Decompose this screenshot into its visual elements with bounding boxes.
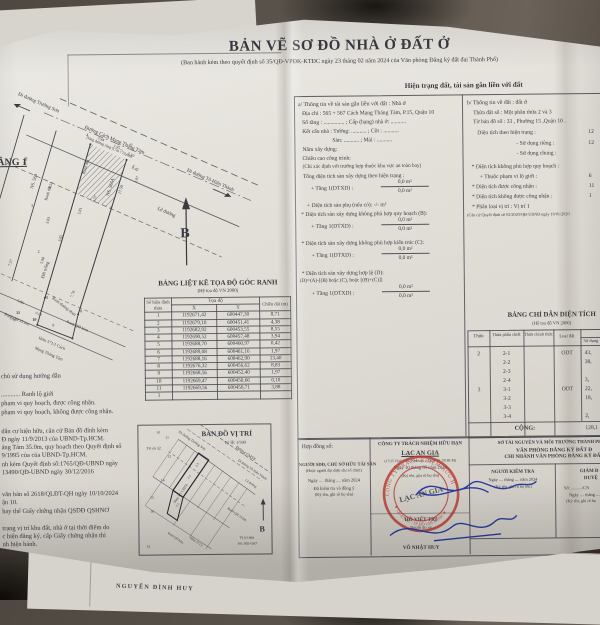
map-lot-number: 14: [161, 479, 165, 483]
area-cell: ODT: [554, 350, 581, 357]
note-line: ận 10.: [2, 499, 18, 507]
area-cell: 3-3: [490, 405, 524, 412]
section-a-line: + Tầng 1(DTXD) :: [312, 291, 354, 298]
signature-2-underline: [434, 534, 500, 541]
dim-label: 8.55: [47, 181, 54, 189]
area-fraction: 0,0 m² 0,0 m²: [381, 217, 429, 233]
area-cell: ODT: [554, 386, 581, 393]
area-cell: 3-2: [490, 396, 524, 403]
location-map-frame: BẢN ĐỒ VỊ TRÍ Tỷ lệ: 1/500: [137, 423, 272, 555]
coord-col-vertex: Số hiệu đỉnh thửa: [144, 298, 171, 313]
area-total-value: 128,1: [585, 425, 598, 432]
note-line: nh kèm Quyết định số:1765/QĐ-UBND ngày: [2, 460, 118, 469]
area-cell: 3-4: [490, 414, 524, 421]
area-cell: 43,: [585, 350, 592, 356]
company-type: CÔNG TY TRÁCH NHIỆM HỮU HẠN: [372, 441, 469, 448]
section-b-label: Tờ bản đồ số : 33 , Phường 15 ,Quận 10 .: [473, 118, 566, 125]
section-b-label: * Diện tích được công nhận :: [472, 184, 537, 191]
photo-scene: NGUYỄN ĐÌNH HUY BẢN VẼ SƠ ĐỒ NHÀ Ở ĐẤT Ở…: [0, 0, 600, 600]
area-cell: 2: [468, 351, 490, 358]
vertex-number: 2: [37, 249, 39, 254]
coord-col-len: Chiều dài (m): [259, 297, 290, 312]
note-line: nh hiện hành.: [3, 541, 38, 549]
map-lot-number: 12: [168, 454, 172, 458]
area-cell: 2-1: [490, 351, 524, 358]
section-a-line: Kết cấu nhà : Tường: ........... ; Cột :…: [302, 128, 399, 135]
area-col-sub: Thửa phân chiết: [489, 332, 523, 338]
fraction-bottom: 0,0 m²: [382, 292, 430, 300]
director-title-1: GIÁM Đ: [580, 469, 599, 475]
area-cell: 3: [468, 387, 490, 394]
map-lot-number: 16: [150, 510, 154, 514]
section-a-line: (D)=(A)-[(B) hoặc (C), hoặc [(B)+(C)]]: [300, 278, 383, 285]
dim-label: 3.83: [44, 216, 51, 224]
signature-2: [390, 516, 516, 535]
section-a-line: Năm xây dựng:: [302, 147, 337, 154]
section-a-address: Địa chỉ : 565 + 567 Cách Mạng Tháng Tám,…: [302, 110, 434, 118]
area-col-type: Loại đất: [553, 333, 580, 339]
contract-number-label: Hợp đồng số:: [302, 444, 333, 451]
location-map: BẢN ĐỒ VỊ TRÍ Tỷ lệ: 1/500: [138, 424, 271, 553]
note-line: 9/1995 của của UBND-Tp.HCM.: [2, 451, 87, 459]
map-lot-number: 15: [150, 496, 154, 500]
map-lot-number: 10: [156, 431, 160, 435]
signatures: [382, 468, 543, 556]
note-line: áng Tám 35.0m, quy hoạch theo Quyết định…: [2, 443, 122, 452]
area-cell: 22,: [585, 386, 592, 392]
area-cell: 3-1: [490, 387, 524, 394]
north-label: B: [180, 226, 190, 241]
area-col-use: Sử dụng: [583, 338, 598, 343]
neighbor-boundary-2: [0, 115, 26, 261]
section-b-label: Thửa đất số : Một phần thửa 2 và 3: [473, 109, 552, 116]
vertex-number: 5: [120, 148, 122, 153]
note-line: c hiện đăng ký, cấp Giấy chứng nhận thì: [2, 532, 105, 540]
cell: [172, 391, 217, 399]
setback-hatch-area: [75, 144, 127, 210]
section-b-label: * Diện tích không được công nhận :: [472, 193, 552, 200]
area-total-label: CỘNG:: [468, 424, 581, 432]
map-lot-number: 32: [147, 545, 151, 549]
area-fraction: 0,0 m² 0,0 m²: [381, 179, 429, 195]
section-b-value: 12: [588, 129, 594, 135]
area-col-official: Thửa chính thức: [523, 331, 553, 337]
house-left-label: NS. 569: [29, 173, 38, 190]
section-b-label: + Thuộc phạm vi lộ giới :: [480, 174, 537, 181]
owner-date: Ngày .... tháng .... năm 2024: [299, 477, 369, 483]
section-b-value: 11: [589, 183, 594, 189]
director-number: Số: ........../CN: [564, 485, 589, 490]
fraction-bottom: 0,0 m²: [381, 187, 429, 195]
dept-line-3: CHI NHÁNH VĂN PHÒNG ĐĂNG KÝ ĐẤT: [471, 454, 600, 462]
vertex-number: 3: [31, 203, 33, 208]
section-b-heading: b/ Thông tin về đất : đất ở: [467, 100, 527, 107]
vertex-number: 1: [46, 295, 48, 300]
map-road-dir-right: Đi đường Tô Hiến Thành: [237, 458, 268, 481]
note-line: phạm vi quy hoạch, không được công nhận.: [1, 408, 113, 417]
vertex-number: 7: [133, 164, 135, 169]
dim-label: 7.57: [7, 259, 14, 267]
map-backline: [153, 476, 230, 529]
location-map-scale: Tỷ lệ: 1/500: [224, 440, 246, 445]
road-center-line: [44, 111, 251, 203]
road-dir-right-label: Đi đường Tô Hiến Thành: [186, 168, 235, 193]
section-a-line: Số tầng : ............... ; Cấp (hạng) n…: [302, 119, 406, 127]
note-line: hay thế Giấy chứng nhận QSDĐ QSHNƠ: [2, 507, 109, 515]
vertex-number: 9: [52, 323, 54, 328]
area-cell: 38,: [585, 359, 592, 365]
document-subtitle: (Ban hành kèm theo quyết định số 35/QĐ-V…: [100, 56, 580, 68]
director-date: Ngày .... tháng ....: [569, 492, 600, 497]
arrow-right-head: [224, 193, 231, 197]
section-a-line: (Chỉ xác định với trường hợp thuộc khu v…: [303, 164, 422, 171]
map-alley-2: Hẻm 571/1: [189, 536, 204, 548]
section-b-value: 1: [589, 193, 592, 199]
status-section-header: Hiện trạng đất, tài sản gắn liền với đất: [334, 80, 594, 91]
vertex-number: 6: [130, 142, 132, 147]
area-cell: 3,: [585, 377, 589, 383]
alley-planning-label: Ranh QH hẻm: [66, 319, 90, 333]
dim-label: 5.82: [57, 234, 64, 242]
map-lot-number: 11: [165, 435, 169, 439]
section-b-label: * Phân loại vị trí : Vị trí 1: [472, 204, 530, 211]
section-b-label: * Diện tích không phù hợp quy hoạch :: [472, 163, 560, 170]
map-sidewalk-label: Lề đường: [244, 478, 257, 489]
section-a-heading: a/ Thông tin về tài sản gắn liền với đất…: [298, 101, 406, 109]
vertex-number: 11: [16, 310, 20, 315]
map-sublot: 2-3: [194, 462, 200, 468]
vertex-number: 10: [32, 317, 36, 322]
area-fraction: 0,0 m² 0,0 m²: [382, 284, 430, 300]
document-paper: BẢN VẼ SƠ ĐỒ NHÀ Ở ĐẤT Ở (Ban hành kèm t…: [0, 11, 600, 586]
section-b-label: - Sử dụng riêng :: [516, 140, 554, 147]
vertex-number: 8: [80, 308, 82, 313]
neighbor-boundary-1: [10, 131, 58, 281]
dim-label: 7.76: [69, 290, 76, 298]
map-north-head: [261, 498, 266, 504]
cell: 1: [145, 392, 172, 400]
note-line: ............ Ranh lộ giới: [1, 391, 54, 399]
owner-sign-note: (Ký tên, ghi rõ họ tên): [299, 492, 369, 498]
owner-agree: Đã kiểm tra và đồng ý: [299, 485, 369, 491]
area-col-area: Diện tích: [580, 330, 600, 336]
cell: [260, 391, 291, 399]
dim-label: 5.81: [76, 207, 83, 215]
sidewalk-label: Lề đường: [156, 207, 176, 219]
section-b-value: 12: [588, 140, 594, 146]
road-dir-left-label: Đi đường Trường Sơn: [17, 92, 60, 114]
section-a-line: Chiều cao công trình:: [303, 156, 351, 163]
area-cell: 2-4: [490, 378, 524, 385]
area-fraction: 0,0 m² 0,0 m²: [381, 246, 429, 262]
dim-label: 5.86: [16, 298, 24, 305]
area-cell: 2-3: [490, 369, 524, 376]
area-cell: 2-2: [490, 360, 524, 367]
section-b-label: - Sử dụng chung :: [516, 150, 556, 157]
map-sheet-label: Tờ số 32: [147, 446, 161, 451]
arrow-left-head: [14, 104, 21, 108]
coord-table-title: BẢNG LIỆT KÊ TỌA ĐỘ GÓC RANH: [138, 278, 298, 288]
section-a-line: + Tầng 1(DTXD) :: [311, 224, 353, 231]
area-col-parcel: Thửa: [467, 334, 489, 340]
map-alley-planning: Ranh QH hẻm: [167, 531, 185, 545]
note-line: 13490/QĐ-UBND ngày 30/12/2016: [2, 468, 94, 476]
area-table-title: BẢNG CHỈ DẪN DIỆN TÍCH: [467, 311, 600, 321]
cell: [217, 391, 260, 399]
owner-subtitle: (Hoặc người đại diện cho tổ chức): [299, 468, 369, 473]
dim-label: 3.60: [22, 156, 29, 164]
dim-label: 1.97: [133, 175, 140, 183]
area-cell: 2,: [585, 413, 589, 419]
section-a-line: + Tầng 1(DTXD) :: [312, 253, 354, 260]
section-b-value: 6: [589, 173, 592, 179]
note-line: chủ sử dụng hướng dẫn: [1, 373, 61, 381]
director-sign-note: (Ký tên, ghi rõ họ: [566, 499, 596, 504]
map-position-label: Vị trí nhà: [239, 536, 254, 540]
fraction-bottom: 0,0 m²: [382, 254, 430, 262]
director-title-2: DUYỆ: [584, 476, 598, 482]
coord-row: 1: [145, 391, 291, 401]
area-cell: 18,: [585, 395, 592, 401]
map-position-number: Số: 565+567: [238, 542, 258, 546]
note-line: văn bản số 2618/QLĐT-QH ngày 10/10/2024: [2, 490, 118, 499]
coordinate-table: Số hiệu đỉnh thửa Tọa độ Chiều dài (m) X…: [144, 296, 292, 401]
signature-1-flourish: [420, 488, 488, 496]
map-sublot: 2-1: [186, 474, 192, 480]
map-north-label: B: [259, 524, 265, 533]
map-lot-lines: [144, 439, 247, 550]
note-line: phạm vi quy hoạch, được công nhận.: [1, 399, 96, 407]
fraction-bottom: 0,0 m²: [381, 225, 429, 233]
section-a-line: + Diện tích sàn phụ (nếu có): -/- m²: [307, 202, 386, 209]
section-a-line: + Tầng 1(DTXD) :: [311, 186, 353, 193]
north-arrow-head: [182, 197, 190, 209]
location-map-title: BẢN ĐỒ VỊ TRÍ: [201, 430, 252, 439]
section-b-label: Diện tích theo hiện trạng :: [477, 130, 536, 137]
section-a-line: Sàn: ........... ; Mái : ...........: [332, 137, 392, 144]
map-planning-label: Ranh QH 35.0m: [227, 506, 248, 522]
